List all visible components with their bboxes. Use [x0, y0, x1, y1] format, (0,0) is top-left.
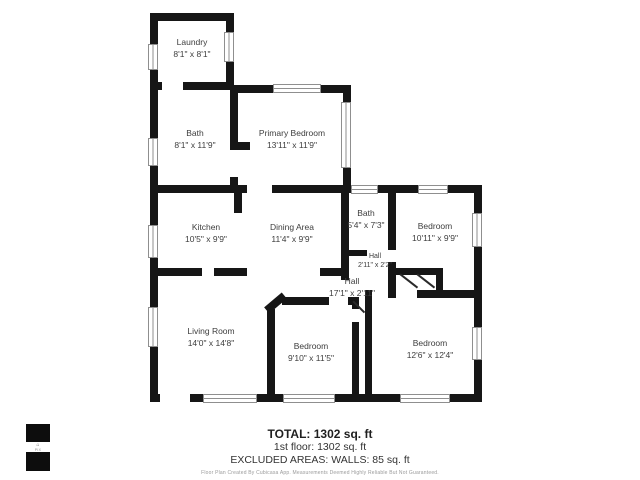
- excluded-area-text: EXCLUDED AREAS: WALLS: 85 sq. ft: [0, 454, 640, 467]
- room-dims: 2'11" x 2'2": [315, 261, 435, 270]
- room-label-bedroom-3: Bedroom 12'6" x 12'4": [370, 338, 490, 361]
- logo-square-bottom: [26, 452, 50, 471]
- wall-segment: [157, 268, 202, 276]
- wall-segment: [378, 185, 418, 193]
- room-label-bedroom-1: Bedroom 10'11" x 9'9": [375, 221, 495, 244]
- logo-square-top: [26, 424, 50, 442]
- room-dims: 9'10" x 11'5": [251, 353, 371, 365]
- disclaimer-text: Floor Plan Created By Cubicasa App. Meas…: [0, 470, 640, 476]
- wall-segment: [474, 185, 482, 213]
- room-name: Bedroom: [370, 338, 490, 350]
- window-symbol: [400, 394, 450, 403]
- room-dims: 10'11" x 9'9": [375, 233, 495, 245]
- window-symbol: [418, 185, 448, 194]
- wall-segment: [474, 247, 482, 327]
- window-symbol: [351, 185, 378, 194]
- wall-segment: [272, 185, 351, 193]
- room-dims: 13'11" x 11'9": [232, 140, 352, 152]
- floor-plan-drawing: Laundry 8'1" x 8'1" Bath 8'1" x 11'9" Pr…: [0, 0, 640, 480]
- wall-segment: [214, 268, 247, 276]
- room-label-hall-small: Hall 2'11" x 2'2": [315, 252, 435, 270]
- room-name: Hall: [292, 276, 412, 288]
- room-name: Bath: [306, 208, 426, 220]
- wall-segment: [150, 13, 233, 21]
- room-name: Bedroom: [251, 341, 371, 353]
- window-symbol: [273, 84, 321, 93]
- total-area-text: TOTAL: 1302 sq. ft: [0, 427, 640, 441]
- room-label-bedroom-2: Bedroom 9'10" x 11'5": [251, 341, 371, 364]
- room-label-hall: Hall 17'1" x 2'11": [292, 276, 412, 299]
- window-symbol: [283, 394, 335, 403]
- room-dims: 8'1" x 8'1": [132, 49, 252, 61]
- room-dims: 11'4" x 9'9": [232, 234, 352, 246]
- room-label-primary-bedroom: Primary Bedroom 13'11" x 11'9": [232, 128, 352, 151]
- room-name: Living Room: [151, 326, 271, 338]
- wall-segment: [190, 394, 203, 402]
- wall-segment: [234, 193, 242, 213]
- area-summary: TOTAL: 1302 sq. ft 1st floor: 1302 sq. f…: [0, 427, 640, 476]
- floor-area-text: 1st floor: 1302 sq. ft: [0, 441, 640, 454]
- logo-middle: ⌂ PIX: [26, 442, 50, 452]
- wall-segment: [183, 82, 233, 90]
- room-label-laundry: Laundry 8'1" x 8'1": [132, 37, 252, 60]
- wall-segment: [150, 258, 158, 307]
- wall-segment: [343, 85, 351, 102]
- wall-segment: [150, 394, 160, 402]
- room-name: Bedroom: [375, 221, 495, 233]
- wall-segment: [450, 394, 482, 402]
- room-dims: 12'6" x 12'4": [370, 350, 490, 362]
- room-name: Hall: [315, 252, 435, 261]
- wall-segment: [150, 82, 162, 90]
- watermark-logo: ⌂ PIX: [26, 424, 50, 471]
- wall-segment: [150, 190, 158, 225]
- closet-door-line: [417, 273, 435, 288]
- wall-segment: [417, 290, 475, 298]
- wall-segment: [233, 85, 273, 93]
- room-name: Laundry: [132, 37, 252, 49]
- logo-text: PIX: [35, 448, 42, 452]
- wall-segment: [226, 13, 234, 32]
- floor-plan-page: Laundry 8'1" x 8'1" Bath 8'1" x 11'9" Pr…: [0, 0, 640, 480]
- room-dims: 17'1" x 2'11": [292, 288, 412, 300]
- wall-segment: [150, 185, 247, 193]
- room-name: Primary Bedroom: [232, 128, 352, 140]
- window-symbol: [203, 394, 257, 403]
